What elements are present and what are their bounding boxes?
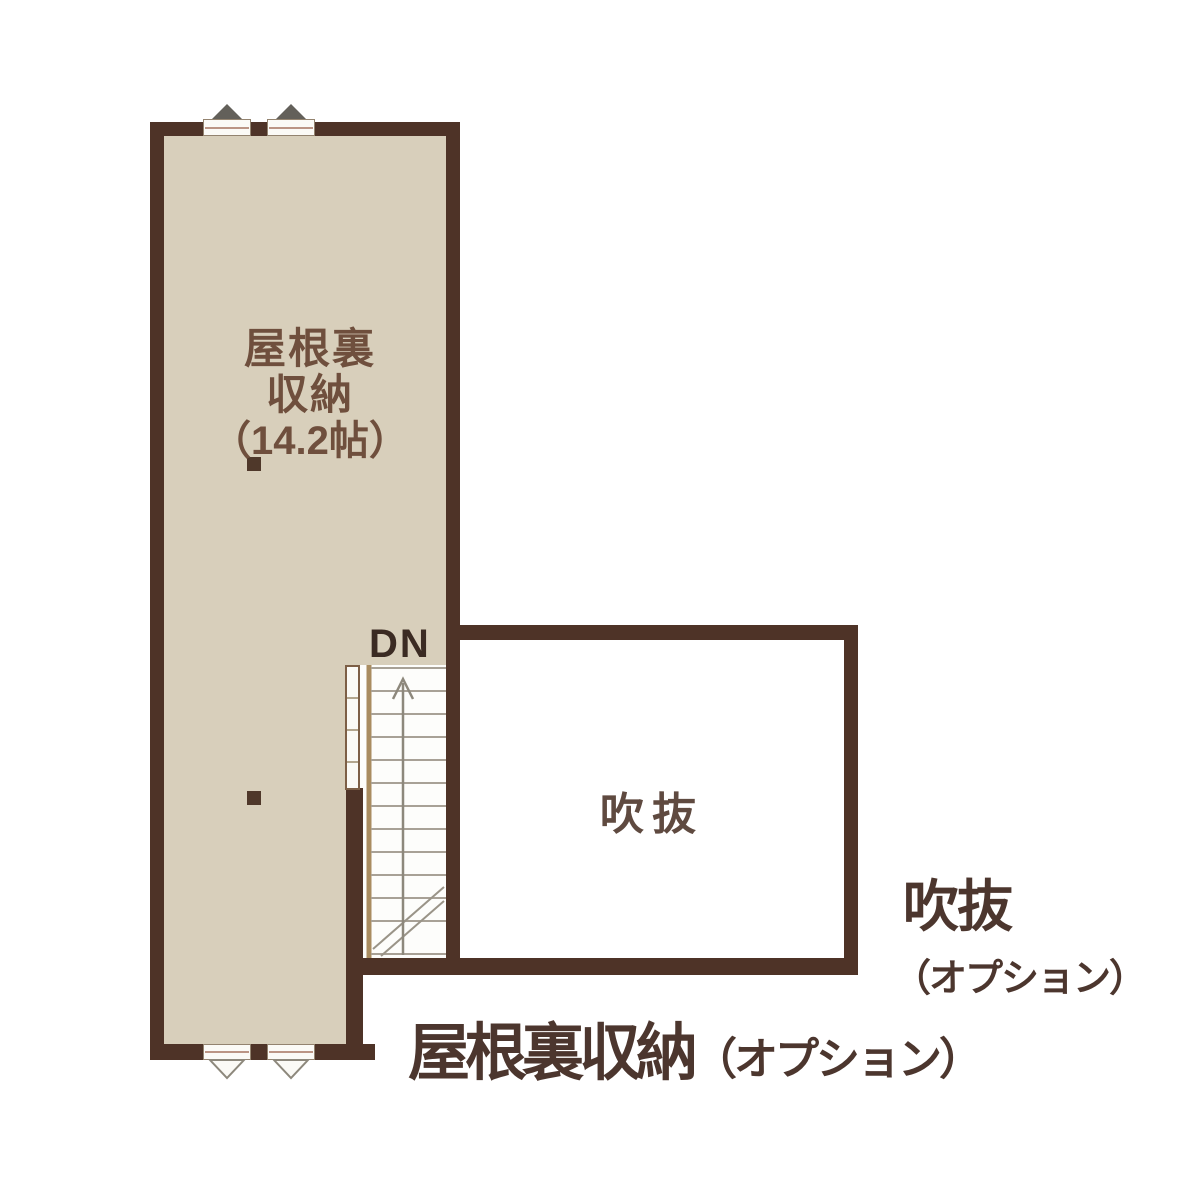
stair-treads [371,668,446,954]
roof-vent-icon [203,1059,251,1081]
roof-vent-icon [267,1059,315,1081]
void-right-wall [844,625,858,975]
stair-railing [345,665,360,790]
vent-louver-icon [203,119,251,136]
attic-room-name-line2: 収納 [175,372,445,418]
attic-room-label: 屋根裏 収納 （14.2帖） [175,326,445,464]
stair-dn-label: DN [369,622,431,667]
attic-bottom-wall [150,1044,375,1060]
void-room-label: 吹抜 [552,778,752,842]
attic-room-floor-lower [150,668,363,1060]
attic-option-caption: 屋根裏収納（オプション） [408,1002,980,1092]
stair-direction-arrow [393,679,413,955]
vent-louver-icon [267,119,315,136]
void-option-subtitle: （オプション） [893,947,1145,1002]
attic-right-wall [446,122,460,975]
stair-void-bottom-wall [346,958,858,975]
attic-option-title: 屋根裏収納 [408,1019,693,1088]
vent-louver-icon [267,1044,315,1060]
attic-room-size: （14.2帖） [175,418,445,464]
attic-left-wall [150,122,164,1060]
attic-room-name-line1: 屋根裏 [175,326,445,372]
void-top-wall [446,625,858,640]
void-option-title: 吹抜 [903,862,1145,943]
attic-option-subtitle: （オプション） [693,1035,980,1084]
staircase [359,665,446,958]
vent-louver-icon [203,1044,251,1060]
floor-plan-page: { "colors": { "wall": "#4e3327", "floor"… [0,0,1200,1198]
void-option-caption: 吹抜 （オプション） [903,862,1145,1002]
post-marker [247,791,261,805]
